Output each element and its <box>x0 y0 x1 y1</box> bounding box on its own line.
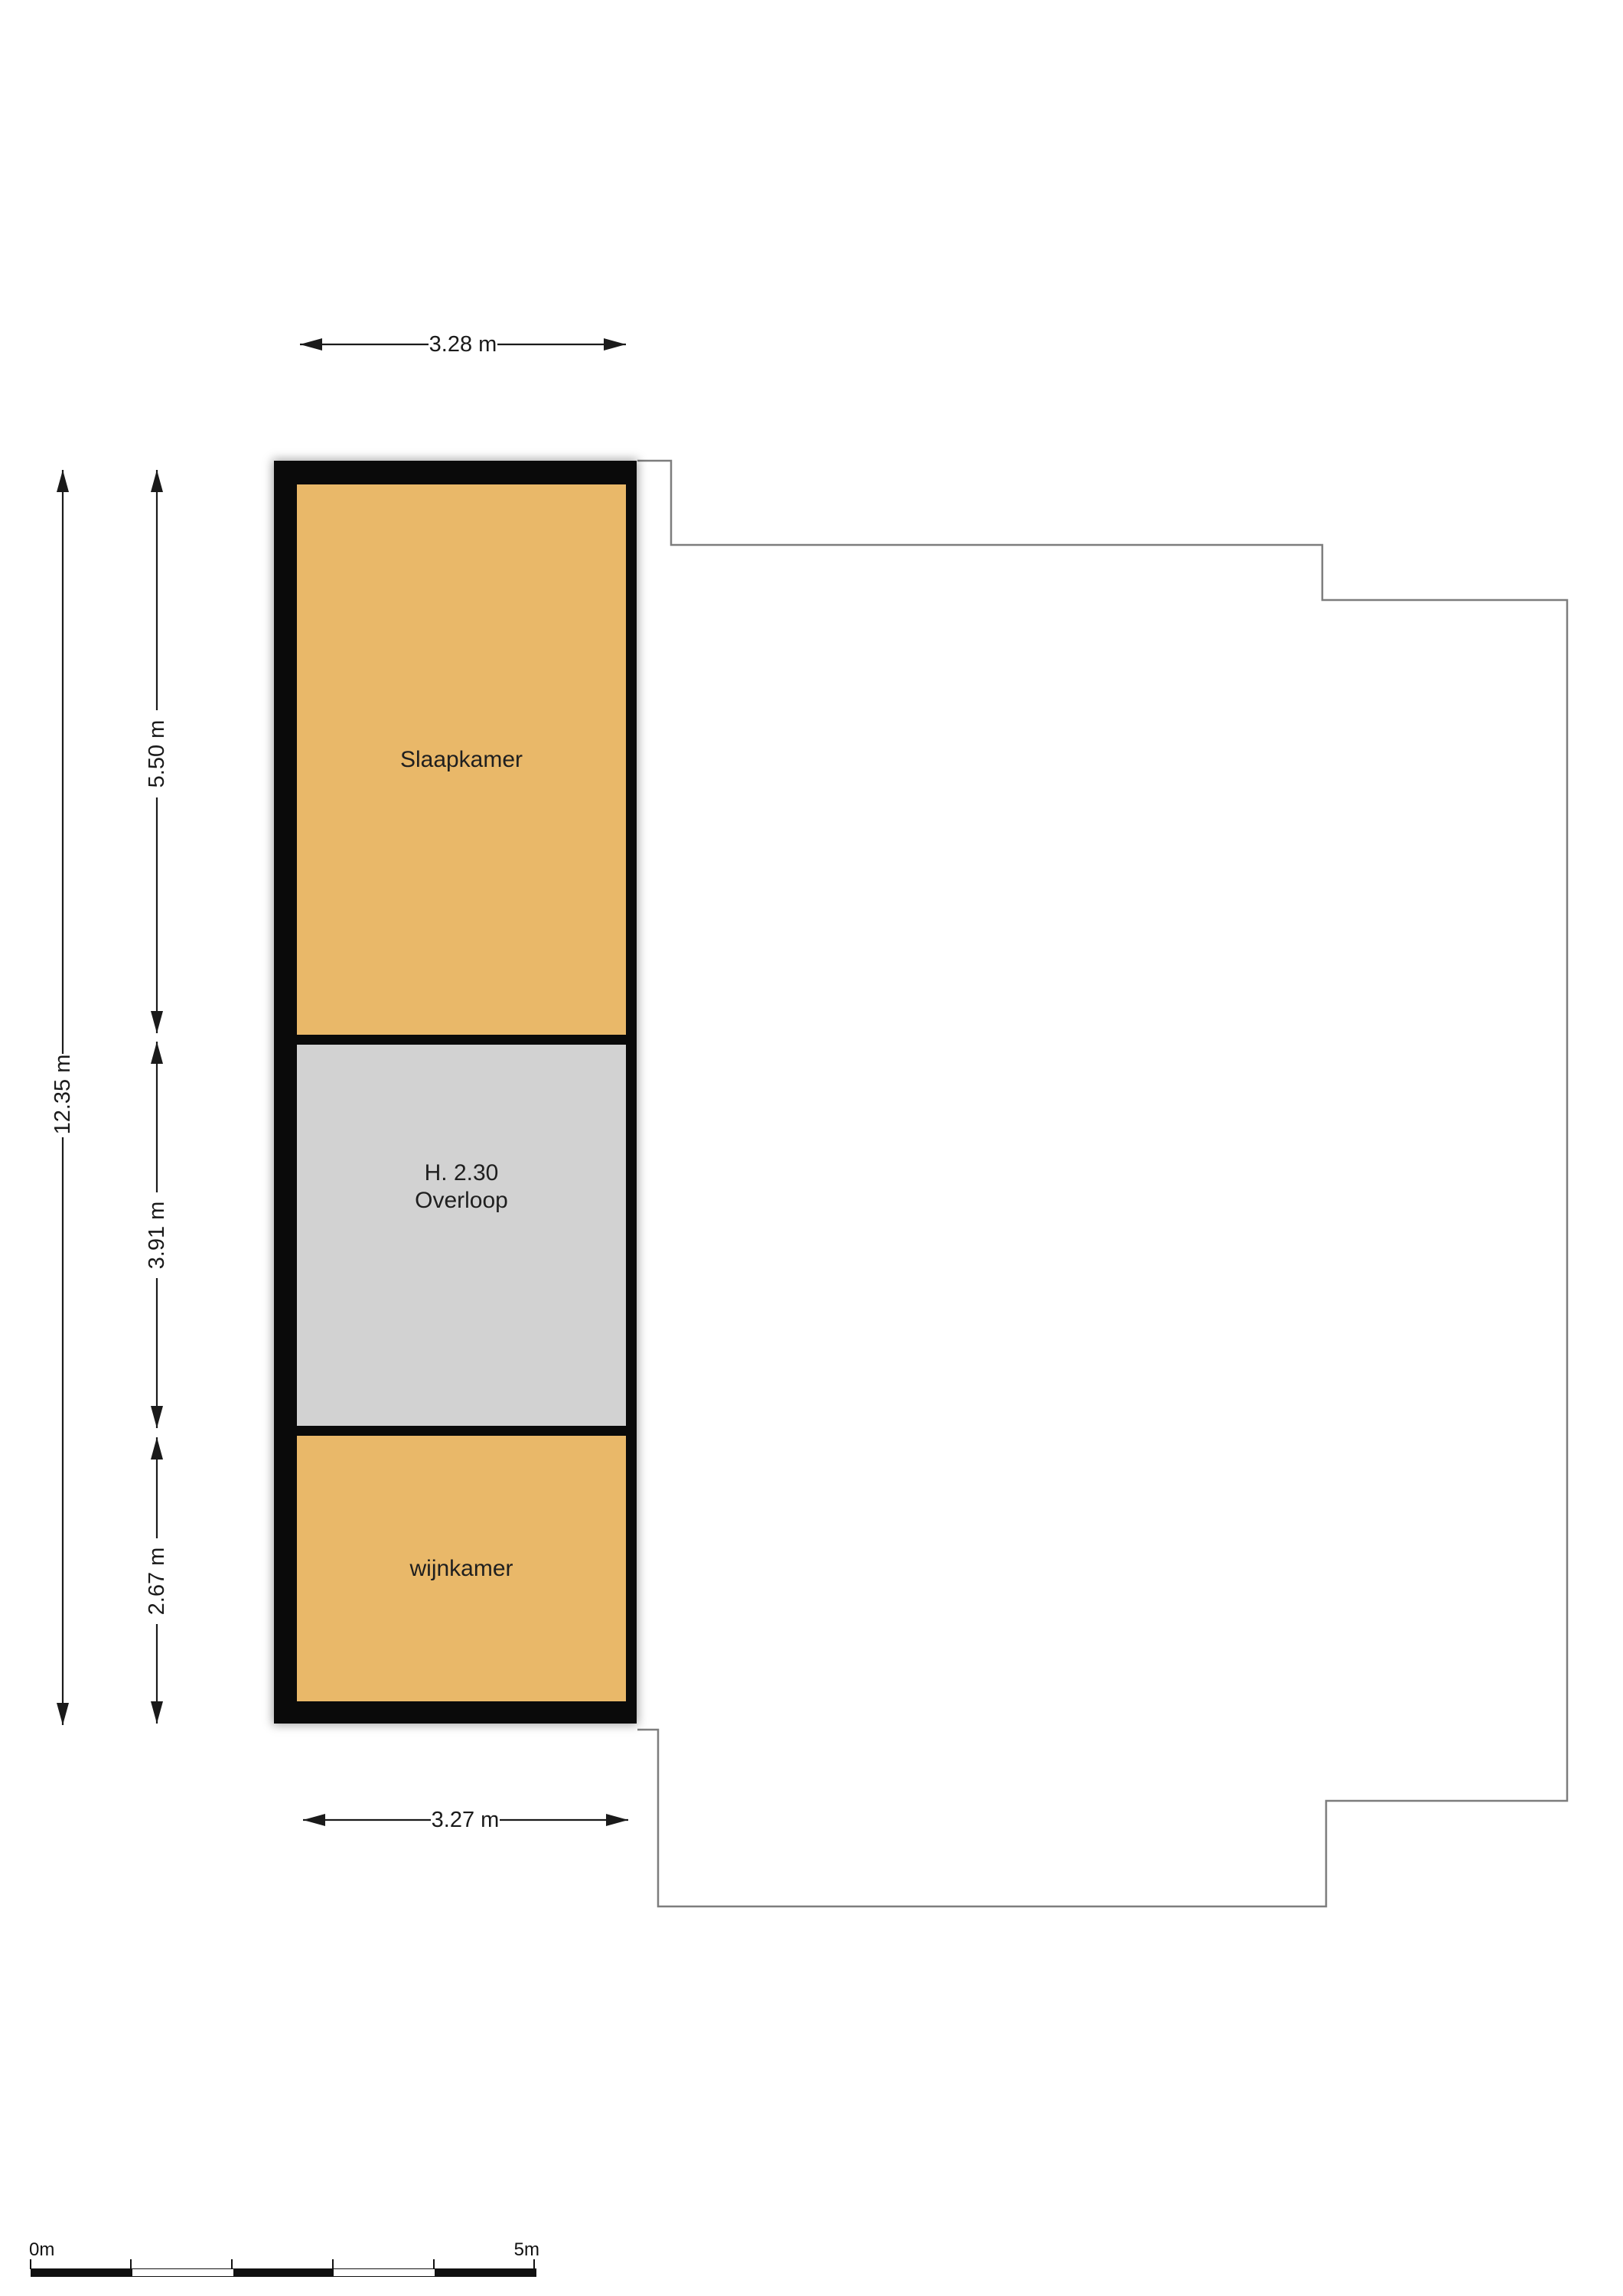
scale-label-start: 0m <box>29 2239 54 2261</box>
room-label-overloop: H. 2.30 Overloop <box>415 1159 508 1215</box>
room-slaapkamer: Slaapkamer <box>297 484 626 1035</box>
scale-bar-segment <box>132 2269 233 2276</box>
scale-bar-segment <box>435 2269 536 2276</box>
floorplan-page: Slaapkamer H. 2.30 Overloop wijnkamer 3.… <box>0 0 1623 2296</box>
scale-bar-segment <box>334 2269 435 2276</box>
ceiling-height-label: H. 2.30 <box>415 1159 508 1187</box>
building-outline <box>637 461 1567 1906</box>
dimension-segment-wijnkamer: 2.67 m <box>143 1505 171 1658</box>
room-label-slaapkamer: Slaapkamer <box>400 746 523 774</box>
scale-bar-segment <box>31 2269 132 2276</box>
scale-bar-segment <box>233 2269 334 2276</box>
dimension-segment-overloop: 3.91 m <box>143 1159 171 1312</box>
dimension-segment-slaapkamer: 5.50 m <box>143 677 171 830</box>
room-name-overloop: Overloop <box>415 1187 508 1215</box>
scale-label-end: 5m <box>494 2239 539 2261</box>
dimension-total-height: 12.35 m <box>49 1018 77 1171</box>
room-overloop: H. 2.30 Overloop <box>297 1045 626 1426</box>
dimension-top-width: 3.28 m <box>386 331 539 358</box>
plan-linework <box>0 0 1623 2296</box>
scale-bar <box>31 2268 536 2277</box>
room-wijnkamer: wijnkamer <box>297 1436 626 1701</box>
floorplan-body: Slaapkamer H. 2.30 Overloop wijnkamer <box>274 461 637 1724</box>
room-label-wijnkamer: wijnkamer <box>409 1555 513 1583</box>
dimension-bottom-width: 3.27 m <box>389 1806 542 1834</box>
